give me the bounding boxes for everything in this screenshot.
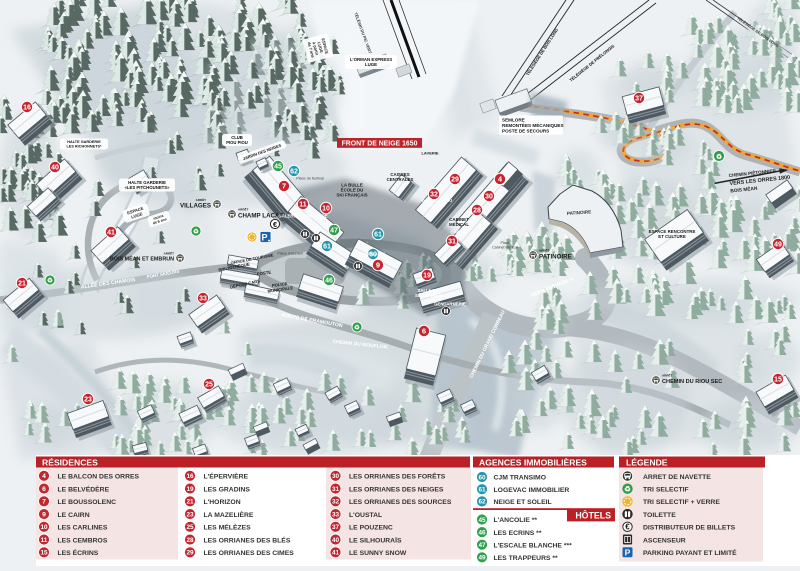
svg-text:11: 11	[299, 202, 307, 209]
svg-text:VILLAGES: VILLAGES	[180, 203, 211, 210]
svg-text:32: 32	[332, 499, 340, 506]
svg-text:47: 47	[478, 542, 486, 549]
svg-text:ARRET DE NAVETTE: ARRET DE NAVETTE	[643, 474, 711, 481]
svg-text:CHEMIN DU RIOU SEC: CHEMIN DU RIOU SEC	[662, 379, 722, 385]
svg-text:ASCENSEUR: ASCENSEUR	[643, 537, 686, 544]
svg-text:9: 9	[42, 511, 46, 518]
svg-text:7: 7	[42, 499, 46, 506]
svg-text:33: 33	[199, 296, 207, 303]
svg-text:CINÉMA: CINÉMA	[450, 230, 468, 235]
svg-text:PHARMACIE: PHARMACIE	[359, 252, 385, 257]
svg-text:41: 41	[332, 550, 340, 557]
svg-text:11: 11	[41, 537, 48, 544]
svg-text:ARRÊT: ARRÊT	[196, 197, 207, 202]
svg-text:41: 41	[107, 230, 115, 237]
svg-text:9: 9	[376, 261, 380, 270]
svg-text:19: 19	[423, 273, 431, 280]
svg-text:PIOU PIOU: PIOU PIOU	[226, 140, 248, 145]
svg-text:SKI FRANÇAIS: SKI FRANÇAIS	[336, 193, 367, 198]
svg-text:29: 29	[186, 550, 194, 557]
svg-text:LE SUNNY SNOW: LE SUNNY SNOW	[349, 550, 407, 557]
svg-text:16: 16	[186, 473, 194, 480]
svg-text:10: 10	[40, 524, 48, 531]
svg-text:62: 62	[290, 169, 298, 176]
svg-text:25: 25	[186, 524, 194, 531]
svg-text:LES ORRIANES DES CIMES: LES ORRIANES DES CIMES	[204, 550, 295, 557]
svg-text:TRI SELECTIF + VERRE: TRI SELECTIF + VERRE	[643, 499, 720, 506]
svg-text:28: 28	[186, 537, 194, 544]
svg-text:OZONE: OZONE	[429, 203, 444, 208]
svg-text:CENTRALES: CENTRALES	[387, 177, 414, 182]
svg-text:6: 6	[42, 486, 46, 493]
svg-text:FRONT DE NEIGE 1650: FRONT DE NEIGE 1650	[342, 141, 418, 148]
svg-text:61: 61	[374, 232, 382, 239]
svg-text:♻: ♻	[716, 153, 722, 161]
svg-text:CJM TRANSIMO: CJM TRANSIMO	[494, 475, 547, 482]
svg-text:LES ÉCRINS: LES ÉCRINS	[58, 548, 99, 557]
svg-text:LES TRAPPEURS **: LES TRAPPEURS **	[494, 555, 559, 562]
svg-text:PARKING PAYANT ET LIMITÉ: PARKING PAYANT ET LIMITÉ	[643, 548, 737, 557]
svg-text:L'ESCALE BLANCHE ***: L'ESCALE BLANCHE ***	[494, 542, 573, 549]
svg-text:61: 61	[478, 487, 486, 494]
svg-text:RÉSIDENCES: RÉSIDENCES	[42, 458, 98, 468]
svg-text:LES ORRIANES DES NEIGES: LES ORRIANES DES NEIGES	[349, 486, 444, 493]
svg-text:P: P	[625, 547, 631, 557]
svg-text:SÉMINAIRES: SÉMINAIRES	[415, 293, 441, 298]
svg-text:DISTRIBUTEUR DE BILLETS: DISTRIBUTEUR DE BILLETS	[643, 525, 736, 532]
svg-text:15: 15	[40, 550, 48, 557]
svg-text:LES ORRIANES DES BLÉS: LES ORRIANES DES BLÉS	[204, 535, 291, 544]
svg-text:31: 31	[332, 486, 340, 493]
svg-text:«LES PITCHOUNETS»: «LES PITCHOUNETS»	[124, 185, 170, 190]
svg-text:37: 37	[332, 524, 340, 531]
svg-text:TRI SELECTIF: TRI SELECTIF	[643, 487, 689, 494]
svg-text:6: 6	[422, 327, 426, 336]
svg-text:LUGE: LUGE	[365, 62, 377, 67]
svg-text:GALERIE MARCHANDE: GALERIE MARCHANDE	[278, 214, 328, 219]
svg-text:60: 60	[478, 474, 486, 481]
svg-text:LES ORRIANES DES FORÊTS: LES ORRIANES DES FORÊTS	[349, 472, 446, 481]
svg-text:Cabinet Médical: Cabinet Médical	[492, 246, 518, 250]
svg-text:POSTE DE SECOURS: POSTE DE SECOURS	[502, 129, 549, 134]
svg-text:LE POUZENC: LE POUZENC	[349, 525, 393, 532]
svg-text:LES CEMBROS: LES CEMBROS	[58, 537, 108, 544]
svg-text:62: 62	[478, 499, 486, 506]
svg-text:♻: ♻	[624, 485, 631, 494]
svg-text:Place: Place	[501, 241, 510, 245]
svg-text:45: 45	[478, 517, 486, 524]
svg-text:46: 46	[478, 529, 486, 536]
svg-text:ARRÊT: ARRÊT	[662, 373, 673, 378]
svg-text:19: 19	[186, 486, 194, 493]
svg-text:28: 28	[473, 208, 481, 215]
svg-text:LES GRADINS: LES GRADINS	[204, 486, 251, 493]
svg-text:SEMLORE: SEMLORE	[502, 118, 525, 123]
svg-text:L'ANCOLIE **: L'ANCOLIE **	[494, 517, 538, 524]
svg-text:REMONTÉES MÉCANIQUES: REMONTÉES MÉCANIQUES	[502, 121, 564, 128]
svg-text:Place du festival: Place du festival	[296, 176, 324, 180]
svg-text:25: 25	[205, 382, 213, 389]
svg-text:30: 30	[332, 473, 340, 480]
svg-text:L'ÉPERVIÈRE: L'ÉPERVIÈRE	[204, 472, 249, 481]
svg-text:LOGEVAC IMMOBILIER: LOGEVAC IMMOBILIER	[494, 487, 570, 494]
svg-text:GENDARMERIE: GENDARMERIE	[434, 302, 466, 307]
svg-text:40: 40	[332, 537, 340, 544]
svg-text:BOIS MÉAN ET EMBRUN: BOIS MÉAN ET EMBRUN	[110, 255, 174, 263]
svg-text:P: P	[261, 232, 267, 242]
svg-text:47: 47	[330, 228, 338, 235]
svg-text:61: 61	[323, 244, 331, 251]
svg-text:7: 7	[282, 182, 286, 191]
svg-text:L'HORIZON: L'HORIZON	[204, 499, 241, 506]
svg-text:33: 33	[332, 511, 340, 518]
svg-text:♻: ♻	[354, 324, 360, 332]
svg-text:LES RICHONNETS*: LES RICHONNETS*	[66, 145, 102, 149]
svg-text:€: €	[625, 523, 630, 532]
svg-text:ARRÊT: ARRÊT	[238, 207, 249, 212]
svg-text:TOILETTE: TOILETTE	[643, 512, 676, 519]
svg-text:21: 21	[18, 281, 26, 288]
svg-text:4: 4	[42, 473, 46, 480]
svg-text:LA MAZELIÈRE: LA MAZELIÈRE	[204, 510, 254, 519]
svg-text:Place d'accueil: Place d'accueil	[277, 251, 302, 255]
svg-text:46: 46	[325, 278, 333, 285]
svg-text:21: 21	[186, 499, 194, 506]
svg-text:15: 15	[774, 377, 782, 384]
svg-text:LES ECRINS **: LES ECRINS **	[494, 530, 542, 537]
svg-text:37: 37	[635, 96, 643, 103]
svg-text:€: €	[273, 220, 277, 229]
svg-text:49: 49	[774, 242, 782, 249]
svg-text:LAVERIE: LAVERIE	[421, 150, 438, 155]
svg-text:PATINOIRE: PATINOIRE	[539, 254, 572, 261]
svg-text:23: 23	[84, 397, 92, 404]
svg-text:ET CULTURE: ET CULTURE	[658, 234, 686, 239]
svg-text:AGENCES IMMOBILIÈRES: AGENCES IMMOBILIÈRES	[479, 458, 587, 468]
svg-text:LES CARLINES: LES CARLINES	[58, 525, 108, 532]
svg-text:ARRÊT: ARRÊT	[164, 251, 175, 256]
svg-text:HALTE GARDERIE: HALTE GARDERIE	[67, 140, 101, 144]
svg-text:40: 40	[51, 165, 59, 172]
svg-text:LE CAIRN: LE CAIRN	[58, 512, 90, 519]
svg-text:23: 23	[186, 511, 194, 518]
svg-text:16: 16	[23, 105, 31, 112]
svg-text:31: 31	[448, 239, 456, 246]
svg-text:45: 45	[274, 164, 282, 171]
svg-text:LE BOUSSOLENC: LE BOUSSOLENC	[58, 499, 117, 506]
svg-text:CHAMP LACAS: CHAMP LACAS	[238, 213, 284, 220]
svg-text:L'OUSTAL: L'OUSTAL	[349, 512, 382, 519]
svg-text:29: 29	[451, 177, 459, 184]
svg-text:49: 49	[478, 555, 486, 562]
svg-text:LE BALCON DES ORRES: LE BALCON DES ORRES	[58, 474, 140, 481]
svg-text:NEIGE ET SOLEIL: NEIGE ET SOLEIL	[494, 499, 552, 506]
svg-text:10: 10	[322, 206, 330, 213]
svg-text:ARRÊT: ARRÊT	[539, 248, 550, 253]
svg-text:LE BELVÉDÈRE: LE BELVÉDÈRE	[58, 484, 110, 493]
svg-text:LES ORRIANES DES SOURCES: LES ORRIANES DES SOURCES	[349, 499, 452, 506]
svg-text:♻: ♻	[47, 277, 53, 285]
svg-text:MÉDICAL: MÉDICAL	[449, 222, 469, 227]
svg-text:LE SILHOURAÏS: LE SILHOURAÏS	[349, 536, 402, 544]
svg-text:LES MÉLÈZES: LES MÉLÈZES	[204, 523, 252, 532]
svg-text:LÉGENDE: LÉGENDE	[626, 458, 668, 468]
svg-text:HÔTELS: HÔTELS	[575, 510, 611, 521]
svg-text:30: 30	[485, 194, 493, 201]
svg-text:♻: ♻	[193, 228, 199, 236]
